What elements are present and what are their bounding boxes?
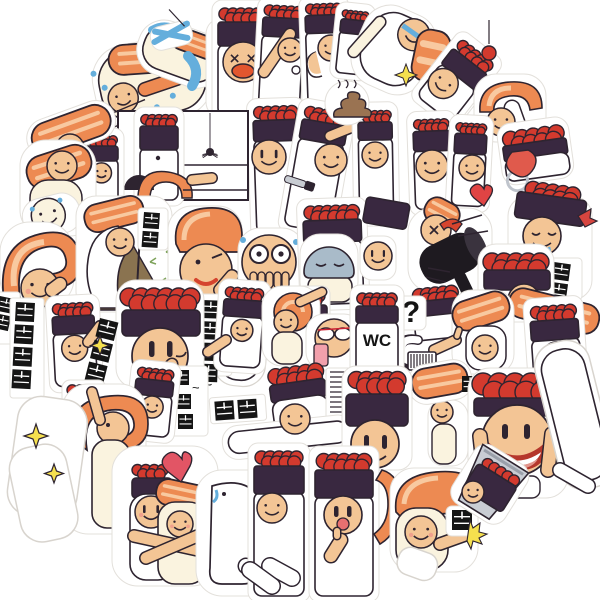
svg-text:?: ? (402, 296, 420, 329)
svg-text:~: ~ (192, 380, 200, 395)
svg-text:WC: WC (363, 331, 391, 350)
